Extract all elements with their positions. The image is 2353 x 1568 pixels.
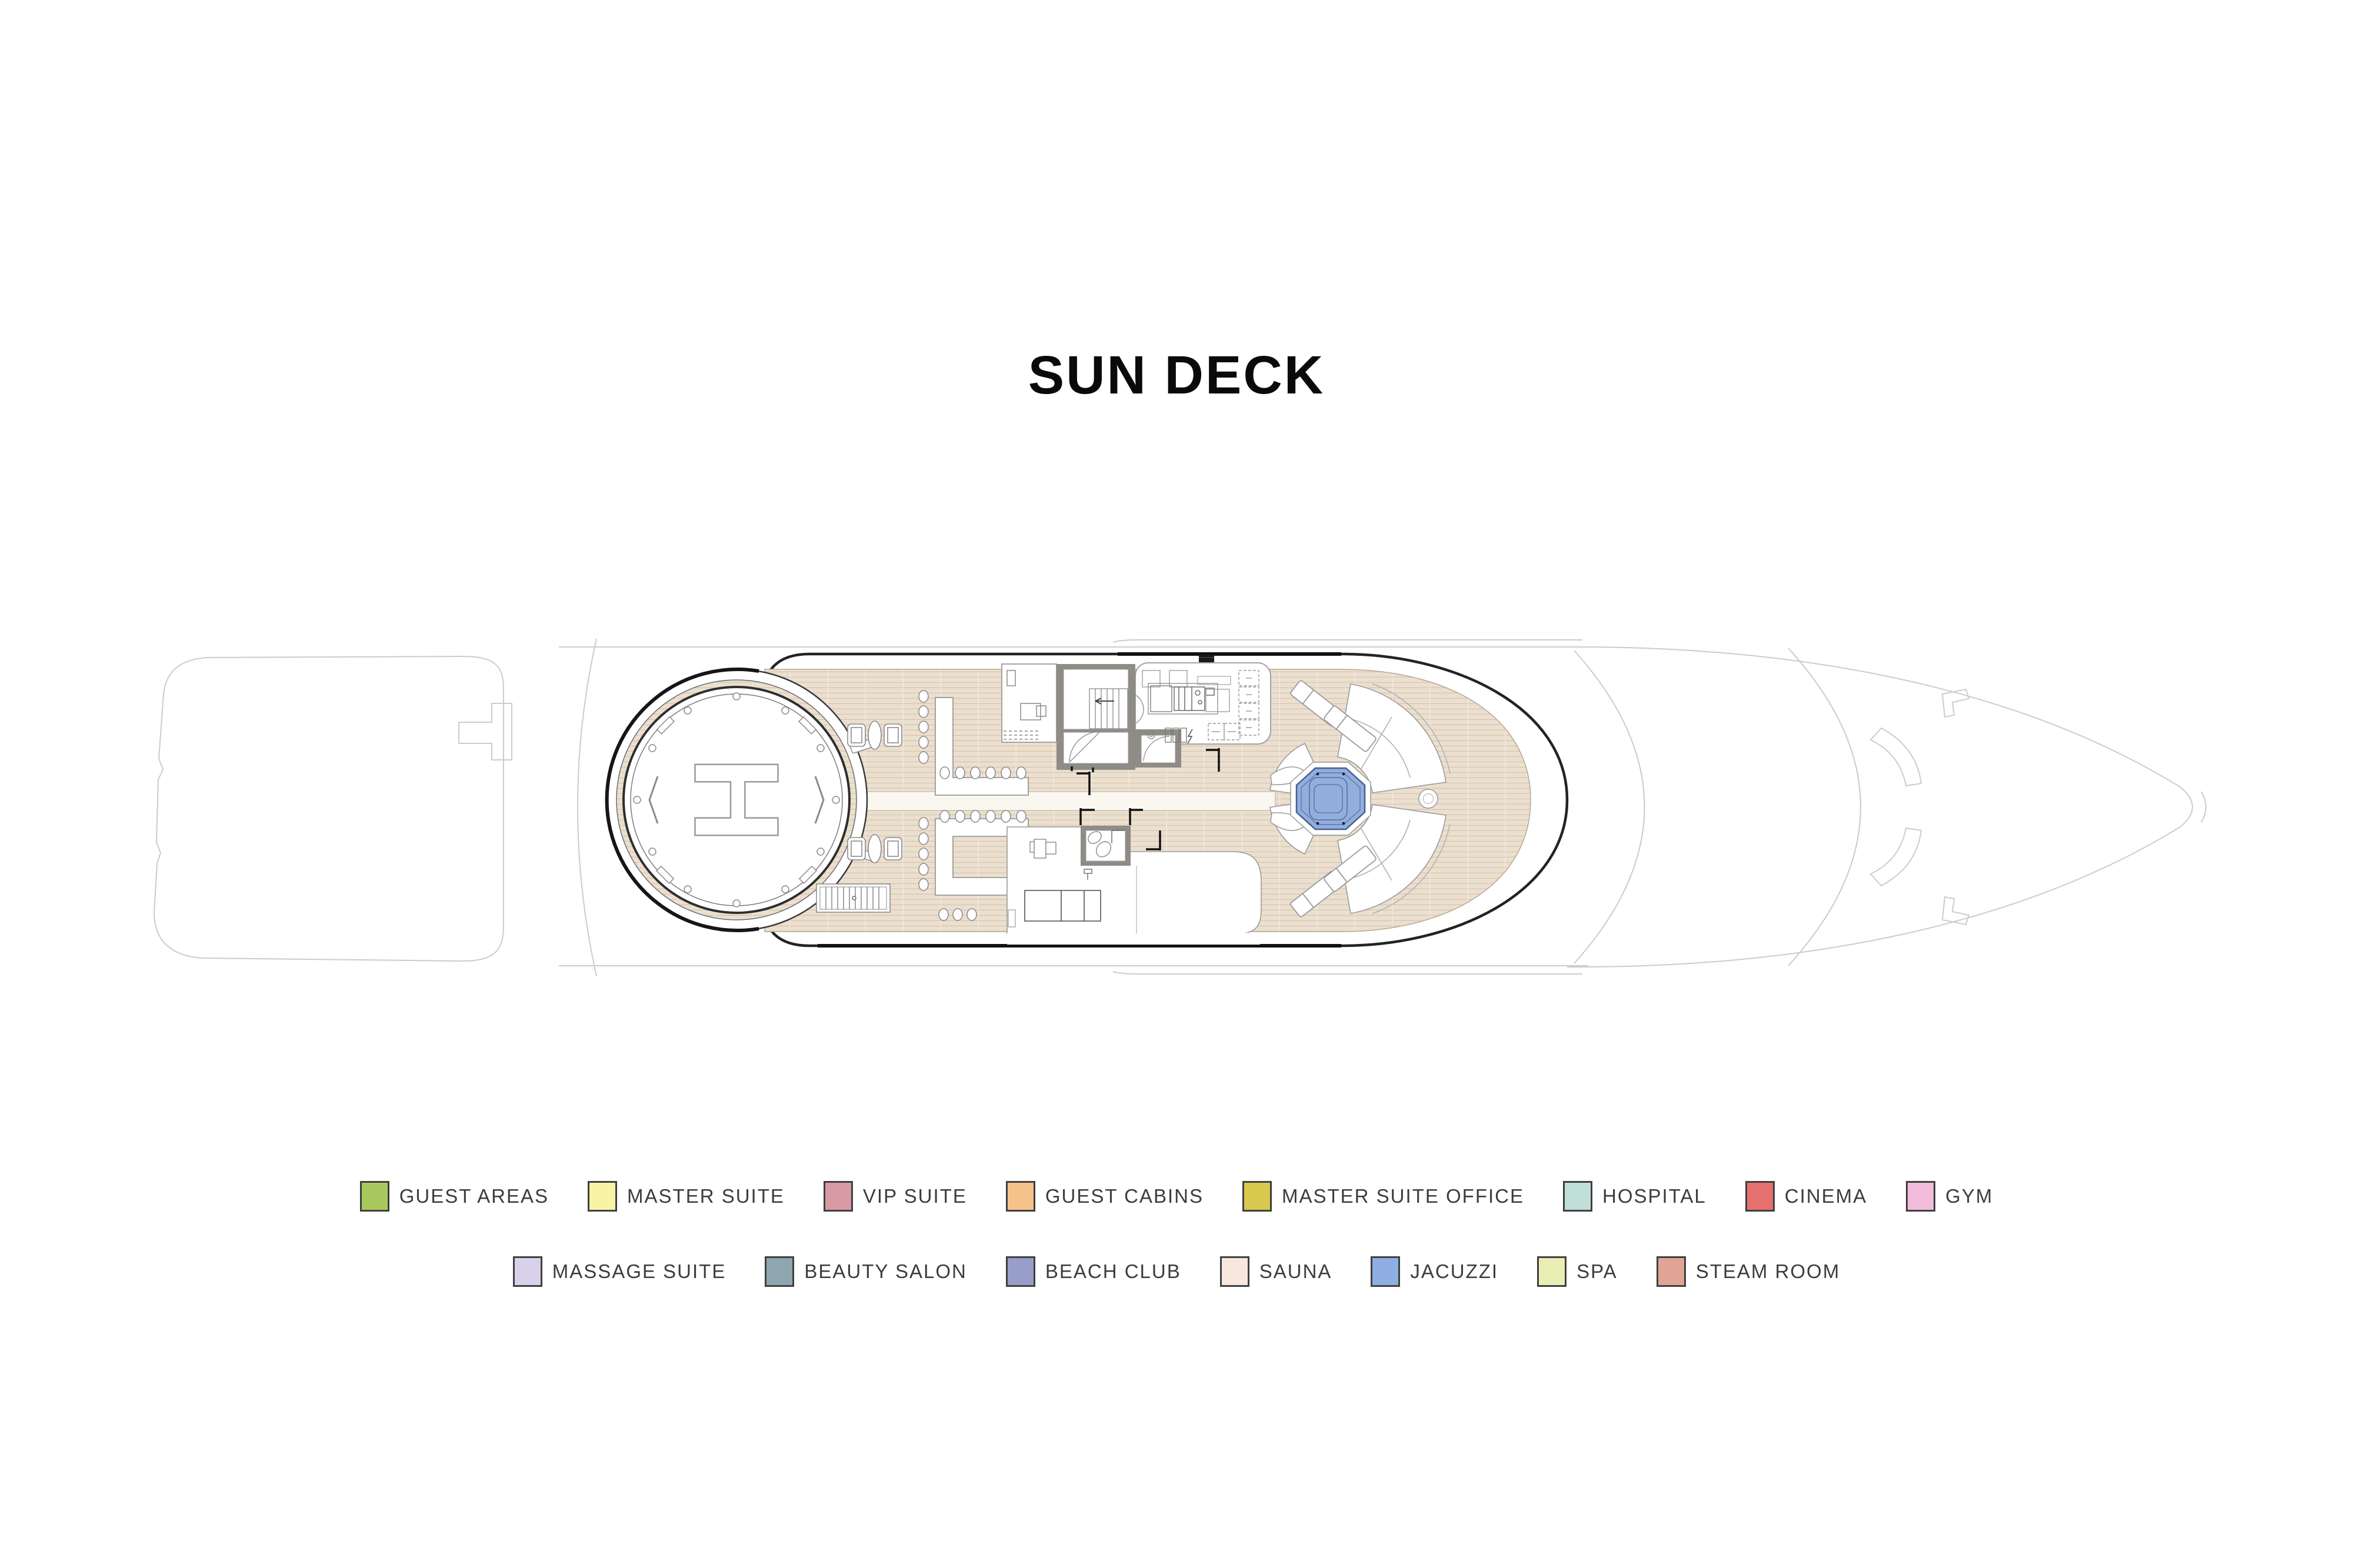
legend-swatch-massage-suite: [513, 1256, 542, 1287]
legend-swatch-hospital: [1563, 1181, 1592, 1212]
legend-row-2: MASSAGE SUITEBEAUTY SALONBEACH CLUBSAUNA…: [0, 1256, 2353, 1287]
legend-swatch-master-suite: [588, 1181, 617, 1212]
hull-bow-chevron-top: [1871, 728, 1921, 786]
legend-label-vip-suite: VIP SUITE: [863, 1185, 967, 1207]
legend-item-jacuzzi: JACUZZI: [1371, 1256, 1498, 1287]
hull-stern-platform: [154, 656, 504, 961]
legend-swatch-spa: [1537, 1256, 1567, 1287]
legend-label-hospital: HOSPITAL: [1602, 1185, 1707, 1207]
hull-mid-top-line: [1113, 640, 1582, 642]
legend-label-beach-club: BEACH CLUB: [1045, 1260, 1181, 1283]
hull-bow-step-top: [1942, 689, 1969, 717]
legend-label-steam-room: STEAM ROOM: [1696, 1260, 1841, 1283]
legend-swatch-cinema: [1745, 1181, 1775, 1212]
legend-item-master-suite: MASTER SUITE: [588, 1181, 785, 1212]
legend-label-cinema: CINEMA: [1785, 1185, 1867, 1207]
legend-label-master-suite: MASTER SUITE: [627, 1185, 785, 1207]
hull-bow-chevron-bottom: [1871, 828, 1921, 886]
legend-swatch-jacuzzi: [1371, 1256, 1400, 1287]
legend-swatch-gym: [1906, 1181, 1935, 1212]
legend-label-massage-suite: MASSAGE SUITE: [552, 1260, 726, 1283]
hull-aft-deck-curve: [578, 639, 596, 976]
center-walkway: [854, 792, 1275, 810]
legend-swatch-guest-areas: [360, 1181, 389, 1212]
jacuzzi: [1291, 762, 1371, 835]
legend-item-hospital: HOSPITAL: [1563, 1181, 1707, 1212]
legend-label-jacuzzi: JACUZZI: [1410, 1260, 1498, 1283]
legend-label-gym: GYM: [1945, 1185, 1993, 1207]
hull-bow-step-bottom: [1942, 897, 1969, 925]
hull-bow-inner-curve-2: [1788, 648, 1861, 966]
legend-item-vip-suite: VIP SUITE: [824, 1181, 967, 1212]
legend-swatch-beauty-salon: [765, 1256, 794, 1287]
terrace-step: [1008, 910, 1015, 927]
sun-pads: [1025, 890, 1101, 921]
legend-swatch-vip-suite: [824, 1181, 853, 1212]
seating-set-upper: [848, 721, 902, 749]
legend-item-beauty-salon: BEAUTY SALON: [765, 1256, 966, 1287]
legend-swatch-beach-club: [1006, 1256, 1035, 1287]
legend-item-sauna: SAUNA: [1220, 1256, 1332, 1287]
terrace-apron: [1007, 933, 1260, 945]
legend-row-1: GUEST AREASMASTER SUITEVIP SUITEGUEST CA…: [0, 1181, 2353, 1212]
legend-label-guest-areas: GUEST AREAS: [399, 1185, 549, 1207]
hull-bow-tip-cap: [2201, 792, 2206, 822]
legend-label-sauna: SAUNA: [1259, 1260, 1332, 1283]
legend-item-steam-room: STEAM ROOM: [1657, 1256, 1841, 1287]
legend-item-cinema: CINEMA: [1745, 1181, 1867, 1212]
legend-swatch-guest-cabins: [1006, 1181, 1035, 1212]
helipad-h-marking: H: [669, 756, 804, 843]
legend-item-beach-club: BEACH CLUB: [1006, 1256, 1181, 1287]
roof-hatch: [1199, 655, 1214, 662]
legend-swatch-master-suite-office: [1242, 1181, 1272, 1212]
legend-swatch-steam-room: [1657, 1256, 1686, 1287]
legend-item-spa: SPA: [1537, 1256, 1618, 1287]
aft-staircase: [816, 884, 890, 912]
hull-bow-inner-curve-1: [1574, 650, 1645, 963]
legend-label-guest-cabins: GUEST CABINS: [1045, 1185, 1204, 1207]
legend-item-massage-suite: MASSAGE SUITE: [513, 1256, 726, 1287]
hull-bow-outline: [1567, 647, 2192, 967]
side-table: [1419, 789, 1438, 808]
legend-swatch-sauna: [1220, 1256, 1249, 1287]
legend-label-master-suite-office: MASTER SUITE OFFICE: [1282, 1185, 1524, 1207]
legend-item-guest-areas: GUEST AREAS: [360, 1181, 549, 1212]
seating-set-lower: [848, 835, 902, 863]
legend-item-guest-cabins: GUEST CABINS: [1006, 1181, 1204, 1212]
legend-label-beauty-salon: BEAUTY SALON: [804, 1260, 966, 1283]
hull-mid-bottom-line: [1113, 972, 1582, 974]
legend-item-gym: GYM: [1906, 1181, 1993, 1212]
deck-plan: H: [0, 0, 2353, 1568]
legend-item-master-suite-office: MASTER SUITE OFFICE: [1242, 1181, 1524, 1212]
legend-label-spa: SPA: [1577, 1260, 1618, 1283]
elevator-cab: [1141, 735, 1175, 763]
